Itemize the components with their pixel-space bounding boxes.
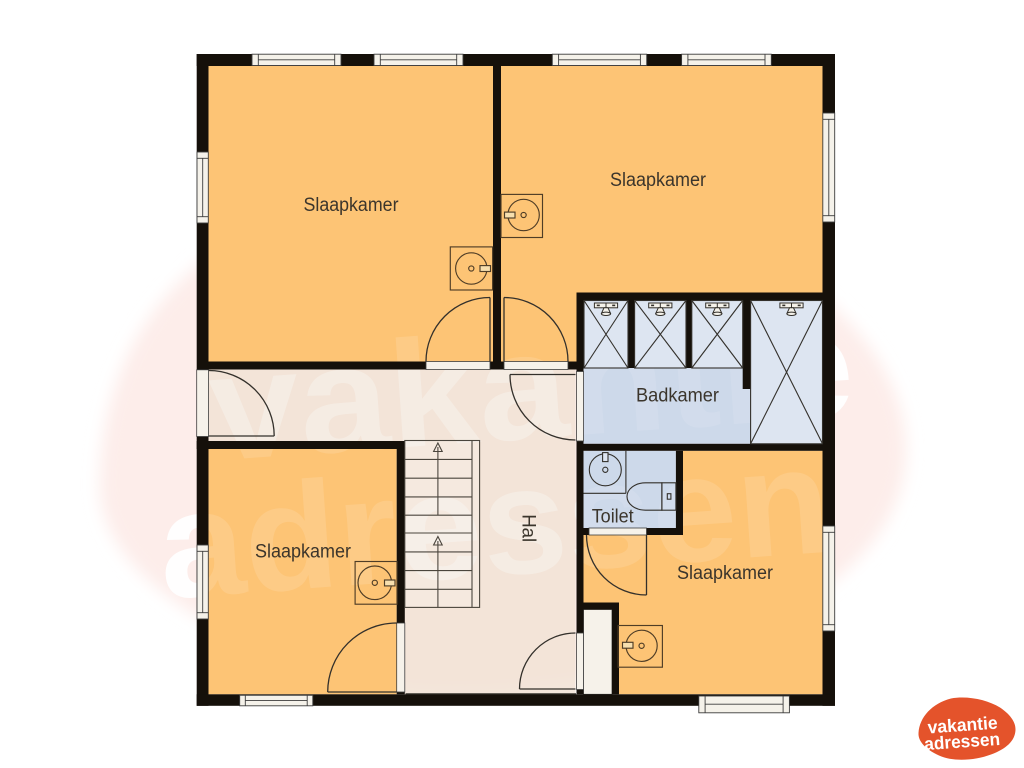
svg-text:Slaapkamer: Slaapkamer — [677, 563, 774, 584]
svg-text:Badkamer: Badkamer — [636, 386, 720, 407]
svg-text:Slaapkamer: Slaapkamer — [610, 170, 707, 191]
svg-text:Hal: Hal — [518, 514, 539, 542]
svg-text:Toilet: Toilet — [592, 507, 635, 528]
svg-text:Slaapkamer: Slaapkamer — [304, 195, 400, 216]
svg-text:Slaapkamer: Slaapkamer — [255, 541, 352, 562]
